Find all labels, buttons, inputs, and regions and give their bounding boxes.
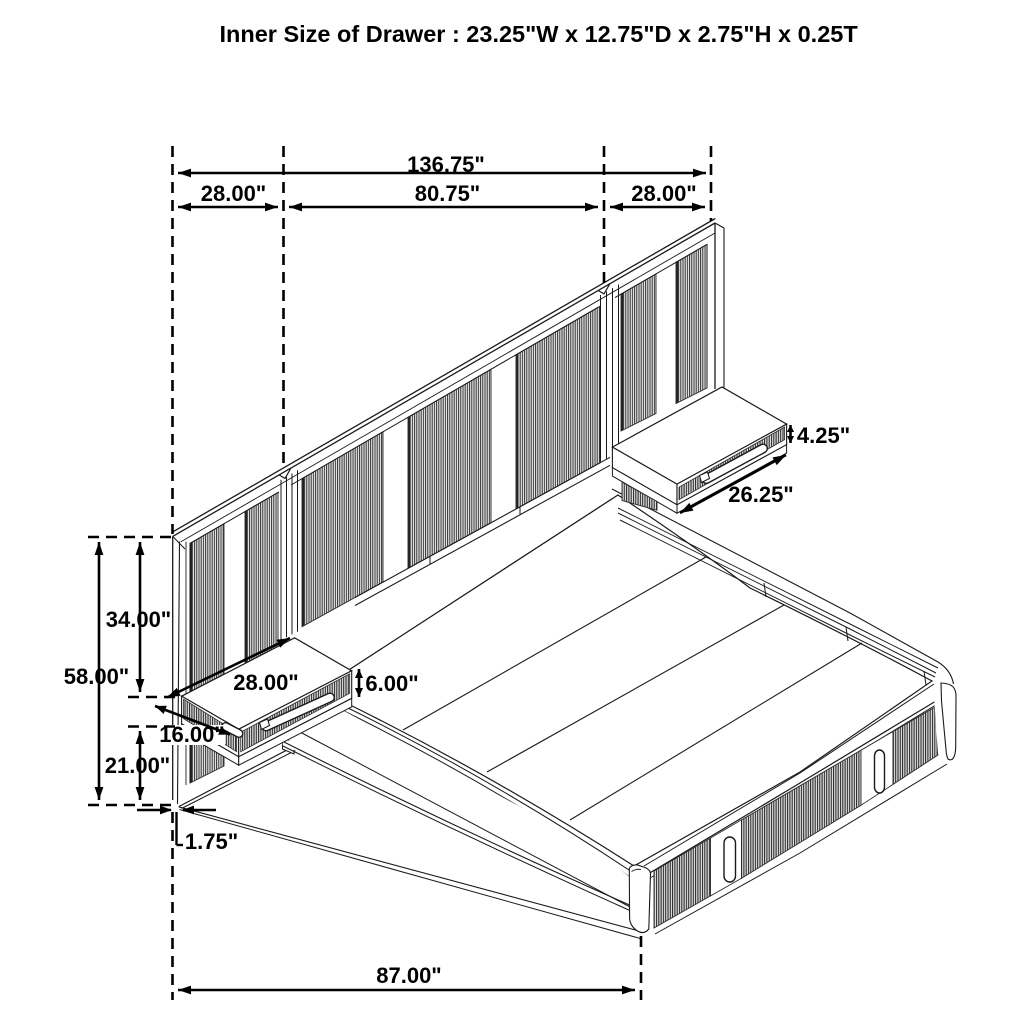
svg-text:4.25": 4.25" [797, 423, 850, 448]
svg-text:136.75": 136.75" [407, 152, 485, 177]
svg-text:28.00": 28.00" [201, 181, 266, 206]
svg-text:Inner Size of Drawer : 23.25"W: Inner Size of Drawer : 23.25"W x 12.75"D… [220, 21, 859, 47]
svg-text:80.75": 80.75" [415, 181, 480, 206]
svg-text:87.00": 87.00" [376, 963, 441, 988]
svg-text:16.00": 16.00" [159, 722, 224, 747]
svg-text:1.75": 1.75" [185, 829, 238, 854]
svg-text:58.00": 58.00" [64, 664, 129, 689]
svg-text:28.00": 28.00" [233, 670, 298, 695]
svg-text:26.25": 26.25" [728, 482, 793, 507]
svg-text:28.00": 28.00" [631, 181, 696, 206]
svg-text:21.00": 21.00" [105, 753, 170, 778]
svg-text:6.00": 6.00" [365, 671, 418, 696]
svg-text:34.00": 34.00" [106, 607, 171, 632]
